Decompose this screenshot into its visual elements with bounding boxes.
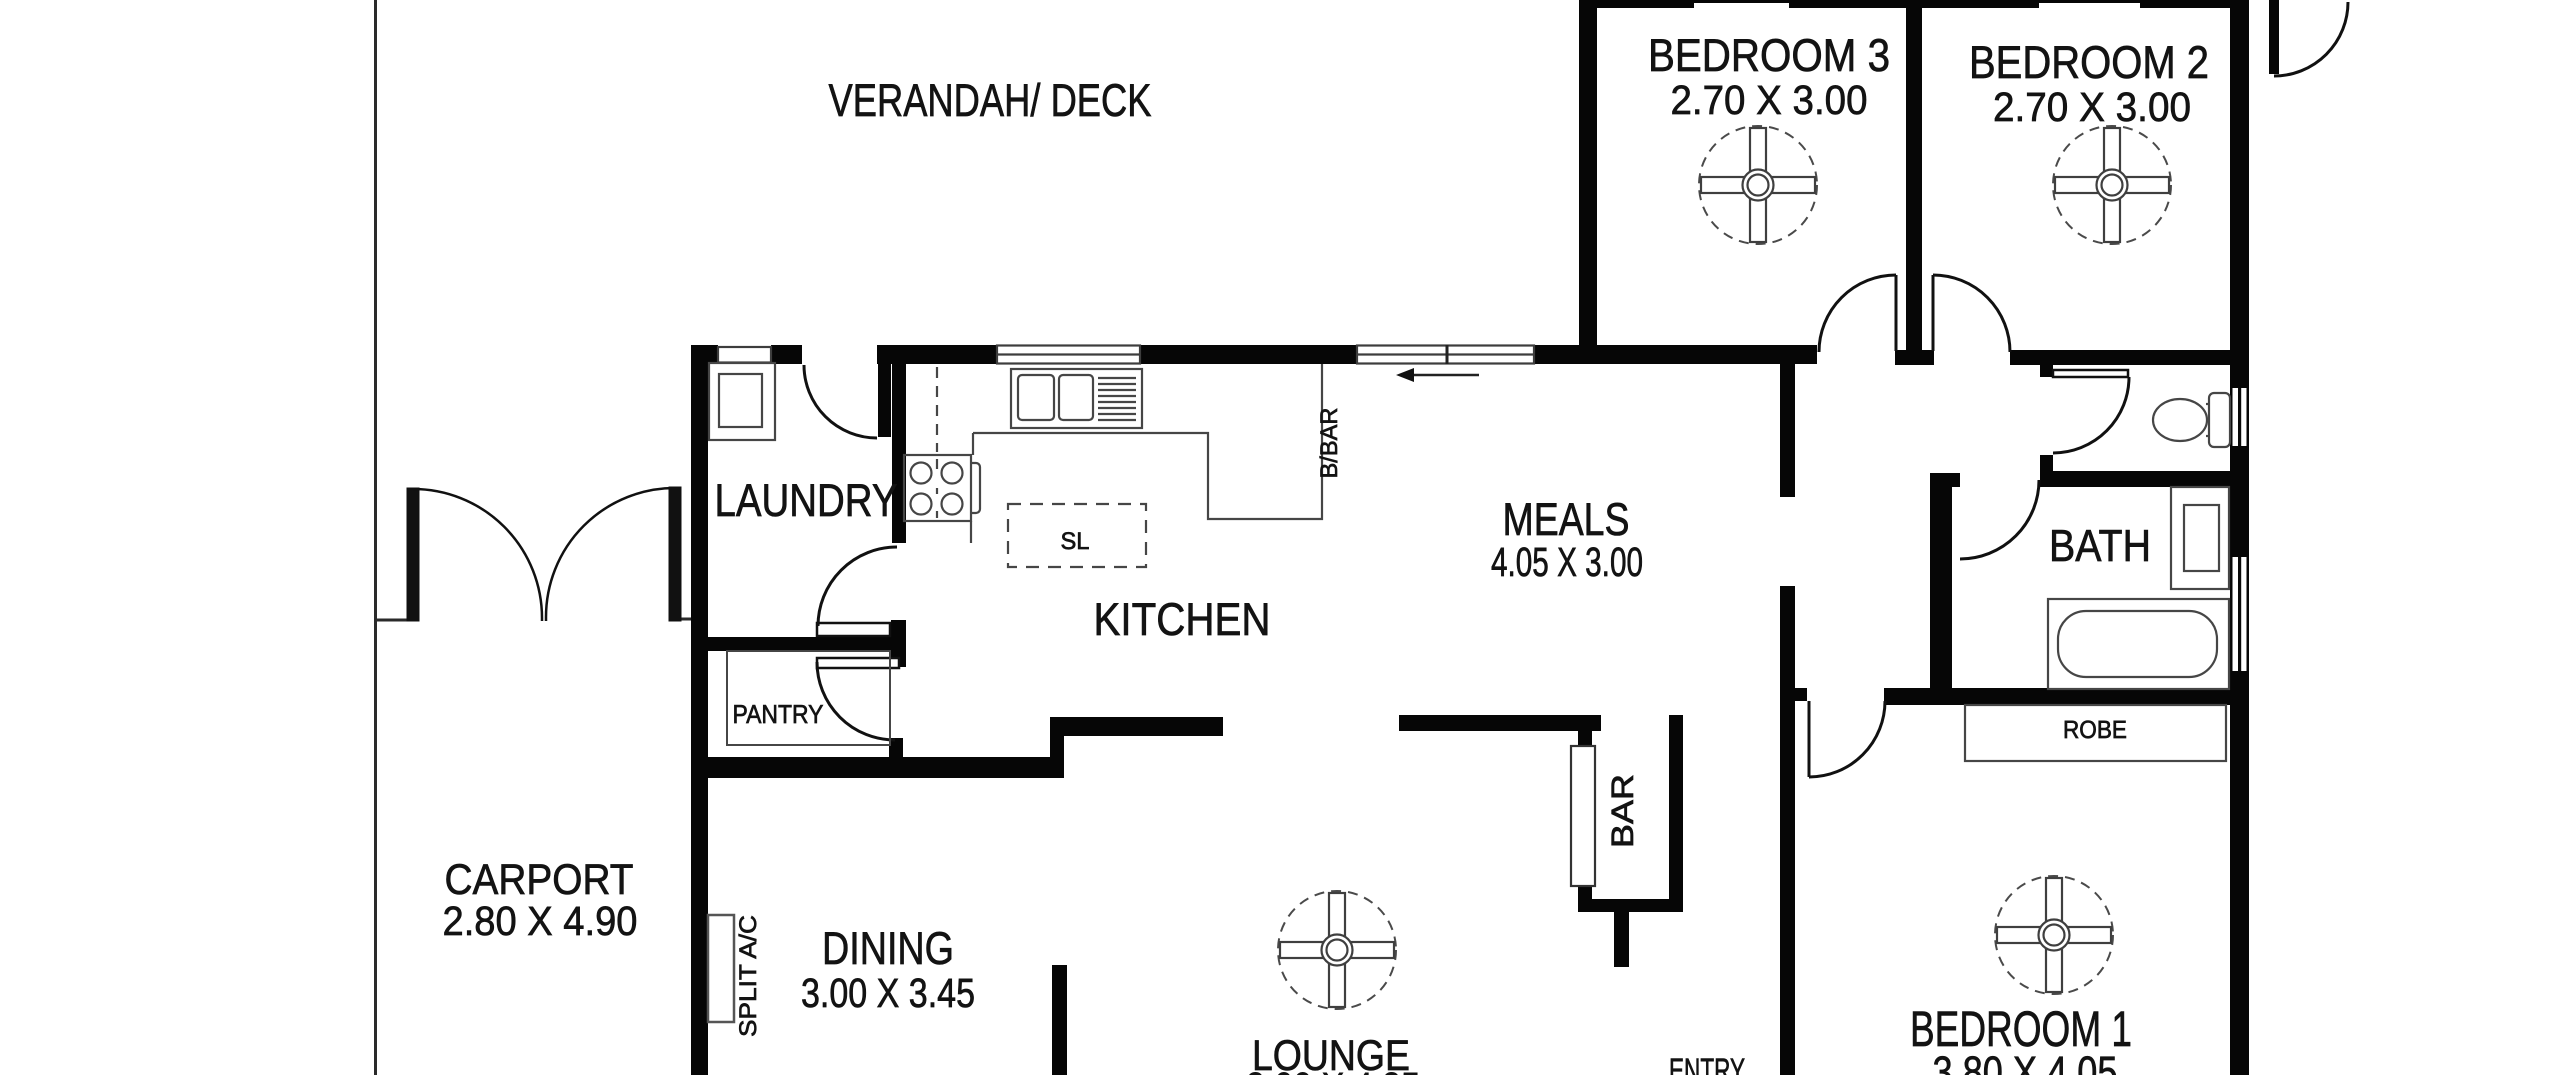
svg-text:VERANDAH/ DECK: VERANDAH/ DECK [829,74,1152,126]
svg-text:ROBE: ROBE [2063,716,2127,744]
svg-text:BEDROOM 2: BEDROOM 2 [1969,36,2209,88]
svg-text:BEDROOM 3: BEDROOM 3 [1648,29,1890,81]
svg-text:DINING: DINING [822,922,954,974]
svg-text:BATH: BATH [2049,520,2151,571]
svg-text:3.00 X 4.35: 3.00 X 4.35 [1246,1064,1420,1075]
svg-text:3.00 X 3.45: 3.00 X 3.45 [801,970,975,1016]
svg-text:SL: SL [1061,528,1090,555]
svg-text:2.70 X 3.00: 2.70 X 3.00 [1993,84,2191,130]
svg-text:KITCHEN: KITCHEN [1094,593,1271,645]
svg-text:3.80 X 4.05: 3.80 X 4.05 [1933,1048,2118,1075]
svg-text:MEALS: MEALS [1503,493,1630,545]
svg-text:BAR: BAR [1605,774,1640,848]
svg-text:4.05 X 3.00: 4.05 X 3.00 [1491,539,1643,585]
svg-text:2.70 X 3.00: 2.70 X 3.00 [1671,77,1868,123]
svg-text:2.80 X 4.90: 2.80 X 4.90 [443,898,638,944]
svg-text:LAUNDRY: LAUNDRY [715,474,898,526]
svg-text:SPLIT A/C: SPLIT A/C [735,915,762,1037]
svg-text:ENTRY: ENTRY [1669,1052,1745,1075]
svg-text:CARPORT: CARPORT [445,856,634,904]
svg-text:PANTRY: PANTRY [733,699,824,729]
svg-text:B/BAR: B/BAR [1316,408,1343,479]
